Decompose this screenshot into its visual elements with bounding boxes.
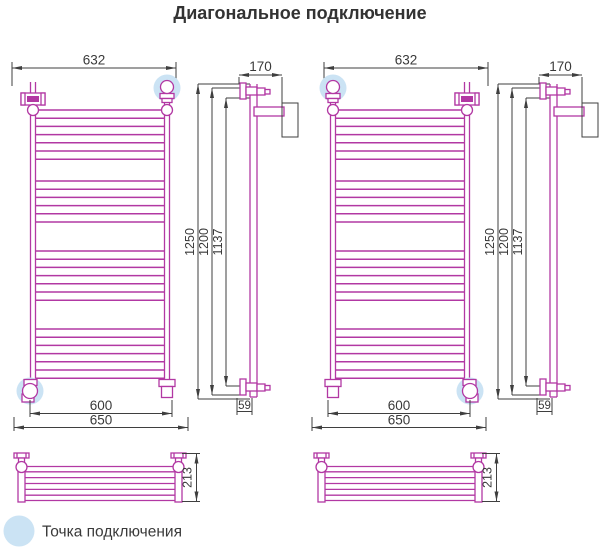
dim-632-label: 632 [83,53,106,68]
wall-bracket-top [240,83,270,99]
dim-650-label: 650 [90,413,113,428]
dim-1137-label: 1137 [211,229,225,256]
rungs [36,110,165,378]
dim-170-label: 170 [249,59,272,74]
shelf-view-left: 213 [14,453,200,502]
legend-label: Точка подключения [42,524,182,541]
valve-fitting-top [21,93,45,105]
page-title: Диагональное подключение [173,3,426,23]
shelf-fitting-left [14,453,29,473]
ball-fitting-top [160,81,174,103]
side-view-left: 1250 1200 1137 170 [183,59,298,415]
dim-59-label: 59 [238,400,251,412]
shelf-view-right [314,453,500,502]
elbow-fitting-bottom [159,380,175,398]
technical-diagram: Диагональное подключение [0,0,600,547]
dim-600-label: 600 [388,398,411,413]
wall-bracket-bottom [240,379,270,395]
dim-213-label: 213 [181,467,195,488]
drawing-sheet: Диагональное подключение [0,0,600,547]
legend-connection-point-marker [4,516,35,547]
front-view-right [312,62,488,431]
shelf-arm [254,107,284,116]
dim-632-label: 632 [395,53,418,68]
dim-1250-label: 1250 [183,228,197,256]
side-view-right [483,59,598,415]
shelf-slats [25,472,175,495]
rail-collar [28,105,39,116]
front-view-left [12,62,188,431]
rail-collar [162,105,173,116]
dim-650-label: 650 [388,413,411,428]
dim-600-label: 600 [90,398,113,413]
dim-1200-label: 1200 [197,228,211,256]
